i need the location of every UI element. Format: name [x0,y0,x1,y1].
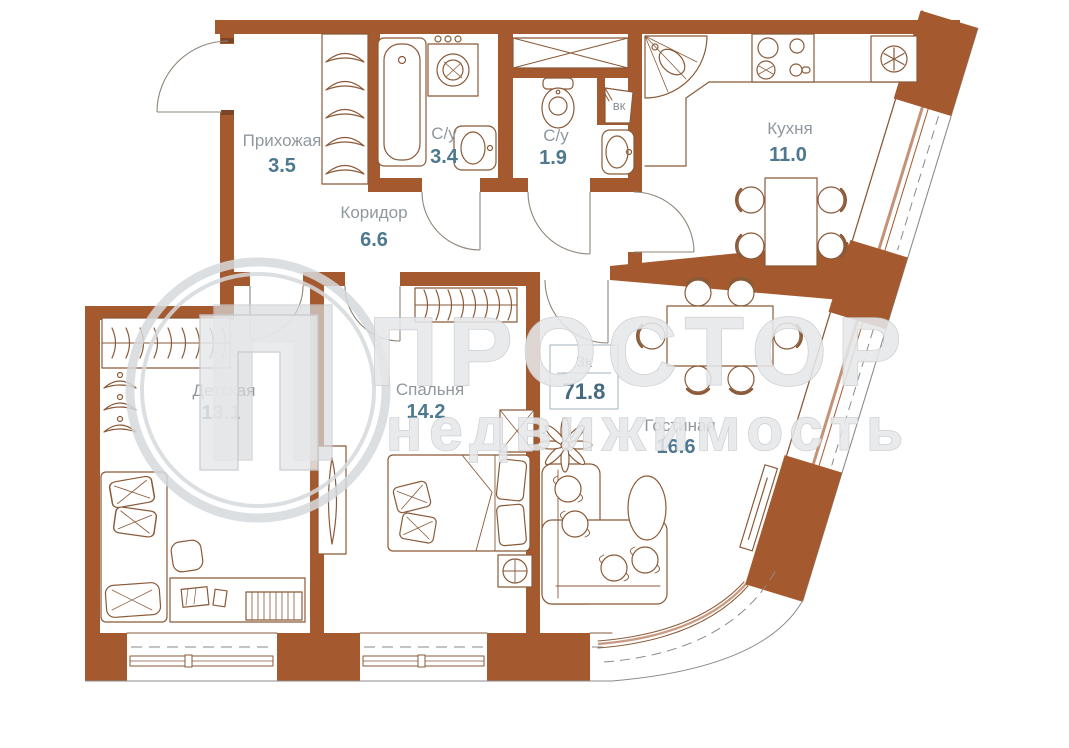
watermark-line1: ПРОСТОР [368,297,911,406]
room-label-corridor: Коридор [340,203,407,222]
vent-shaft-crossed [513,38,628,68]
facade-window-upper [852,99,951,257]
room-area-kitchen: 11.0 [769,144,807,166]
floorplan-canvas: Прихожая 3.5 С/у 3.4 С/у 1.9 Коридор 6.6… [0,0,1069,748]
door-bath-1 [422,192,480,250]
room-area-hall: 3.5 [268,155,296,177]
kitchen-corner-sink [645,36,707,98]
room-label-bath1: С/у [431,124,457,143]
watermark-line2: недвижимость [386,396,910,463]
desk [170,578,305,622]
room-area-bath2: 1.9 [539,147,567,169]
nightstand-lamp [498,555,532,587]
bathtub [378,38,426,166]
floorplan-page: Прихожая 3.5 С/у 3.4 С/у 1.9 Коридор 6.6… [0,0,1069,748]
sink-bath-1 [454,126,496,170]
watermark-ring [130,262,386,518]
window-bedroom [360,633,487,667]
door-kitchen [634,192,694,252]
room-area-corridor: 6.6 [360,229,388,251]
toilet [542,78,574,128]
curved-facade-outer [612,600,803,681]
coffee-table [628,476,666,540]
fridge [871,36,917,82]
stove [752,34,814,82]
vent-label: вк [613,98,626,113]
door-bath-2 [528,192,590,254]
room-label-hall: Прихожая [243,131,322,150]
room-label-bath2: С/у [543,126,569,145]
window-childrens [127,633,277,667]
washing-machine [428,36,478,96]
childrens-bed [101,472,167,622]
double-bed [388,455,530,551]
entrance-door [157,38,234,115]
desk-chair [170,539,204,573]
watermark-logo [200,315,318,470]
sink-bath-2 [602,130,634,174]
room-label-kitchen: Кухня [767,119,813,138]
kitchen-table [736,178,846,266]
room-area-bath1: 3.4 [430,146,459,168]
hall-wardrobe [322,34,368,184]
